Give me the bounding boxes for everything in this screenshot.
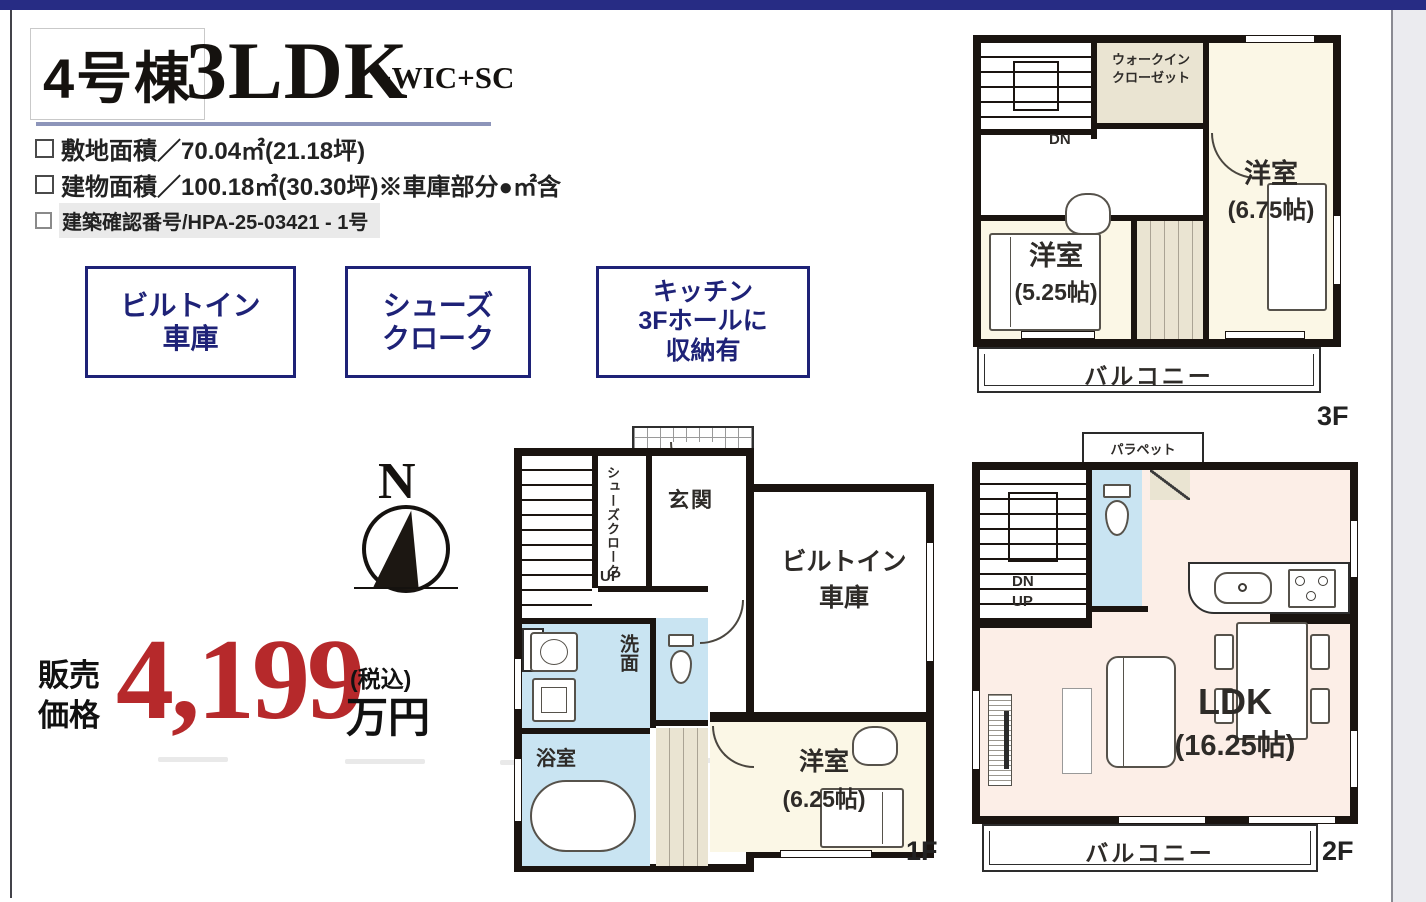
up-label: UP (600, 568, 621, 585)
floor-plan-3f: ウォークイン クローゼット DN 洋室 (6.75帖) 洋室 (5.25帖) バ… (973, 25, 1358, 435)
wic-line1: ウォークイン (1101, 51, 1201, 69)
spec-building-area: 建物面積／100.18㎡(30.30坪)※車庫部分●㎡含 (35, 167, 561, 202)
window (780, 850, 872, 858)
window (1350, 730, 1358, 788)
floor-tag-1f: 1F (906, 836, 938, 867)
shoe-closet-label: シューズクローク (604, 466, 619, 584)
feature-line: キッチン (653, 278, 753, 308)
washer-icon (532, 678, 576, 722)
ldk-label: LDK (16.25帖) (1120, 678, 1350, 766)
room-name: 洋室 (734, 744, 914, 782)
wall (980, 620, 1092, 628)
room-name: 洋室 (981, 237, 1131, 276)
feature-line: シューズ (383, 289, 494, 322)
floor-plan-1f: PS シューズクローク 玄関 UP ビルトイン 車庫 (512, 422, 948, 886)
room-size: (6.25帖) (734, 782, 914, 817)
plan-type-suffix: +WIC+SC (374, 60, 514, 96)
garage-label: ビルトイン 車庫 (764, 544, 924, 617)
wall (650, 618, 656, 728)
compass-base-line (354, 587, 458, 589)
garage-line1: ビルトイン (764, 544, 924, 580)
wic-line2: クローゼット (1101, 69, 1201, 87)
balcony-2f: バルコニー (982, 824, 1318, 872)
feature-line: ビルトイン (120, 289, 260, 322)
stairs-1f (522, 456, 592, 616)
floor-tag-3f: 3F (1317, 401, 1349, 432)
bedroom-525-label: 洋室 (5.25帖) (981, 237, 1131, 309)
up-label: UP (1012, 592, 1034, 612)
price-amount: 4,199 (116, 622, 362, 738)
garage-door-opening (926, 542, 934, 662)
stair-direction-label: DN UP (1012, 572, 1034, 611)
ghost-mark (158, 757, 228, 762)
closet-1f (656, 728, 708, 866)
window (1350, 520, 1358, 578)
window (1248, 816, 1336, 824)
feature-badge-kitchen-storage: キッチン 3Fホールに 収納有 (596, 266, 810, 378)
washer-drum (541, 687, 567, 713)
checkbox-icon (35, 139, 54, 158)
header-underline (36, 122, 491, 126)
checkbox-icon (35, 175, 54, 194)
feature-line: 収納有 (665, 337, 740, 367)
bedroom-675-label: 洋室 (6.75帖) (1209, 155, 1333, 229)
stool-icon (1065, 193, 1111, 235)
feature-badge-shoe-closet: シューズ クローク (345, 266, 531, 378)
tv-screen (1004, 711, 1009, 769)
niche-wedge (1150, 470, 1190, 500)
spec-land-area: 敷地面積／70.04㎡(21.18坪) (35, 131, 365, 166)
window (1021, 331, 1095, 339)
left-border-line (10, 10, 12, 898)
faucet-icon (1238, 583, 1247, 592)
spec-building-area-text: 建物面積／100.18㎡(30.30坪)※車庫部分●㎡含 (61, 167, 561, 202)
right-margin-strip (1393, 10, 1426, 902)
unit-number: 4号棟 (43, 34, 192, 115)
wall (1086, 470, 1092, 622)
room-size: (5.25帖) (981, 276, 1131, 309)
window (514, 758, 522, 822)
parapet-label: パラペット (1084, 439, 1202, 458)
window (1245, 35, 1315, 43)
wall (592, 456, 598, 588)
wall (1131, 221, 1137, 339)
price-unit: 万円 (346, 684, 430, 745)
walkin-closet-label: ウォークイン クローゼット (1101, 51, 1201, 86)
spec-confirmation-number-text: 建築確認番号/HPA-25-03421 - 1号 (59, 203, 380, 238)
vanity-sink-icon (530, 632, 578, 672)
compass-north-label: N (378, 452, 416, 511)
basin (540, 639, 568, 665)
ldk-name: LDK (1120, 678, 1350, 727)
price-caption-line2: 価格 (38, 696, 100, 736)
feature-line: 車庫 (162, 322, 218, 355)
wall (522, 618, 652, 624)
bathtub-icon (530, 780, 636, 852)
wall (656, 720, 708, 726)
stove-icon (1288, 569, 1336, 608)
window (1333, 215, 1341, 285)
bedroom-625-label: 洋室 (6.25帖) (734, 744, 914, 816)
feature-line: クローク (382, 322, 494, 355)
wall (710, 712, 926, 722)
stair-landing (1008, 492, 1058, 562)
price-caption-line1: 販売 (38, 656, 100, 696)
wall (598, 586, 708, 592)
stair-landing (1013, 61, 1059, 111)
entrance-label: 玄関 (668, 484, 714, 514)
wall (981, 129, 1097, 135)
balcony-label: バルコニー (979, 357, 1319, 391)
washroom-label: 洗面 (614, 634, 641, 720)
wall (646, 456, 652, 586)
room-size: (6.75帖) (1209, 194, 1333, 229)
unit-number-box: 4号棟 (30, 28, 205, 120)
floor-plan-2f: パラペット (970, 432, 1372, 884)
garage-line2: 車庫 (764, 580, 924, 616)
spec-land-area-text: 敷地面積／70.04㎡(21.18坪) (61, 131, 365, 166)
room-name: 洋室 (1209, 155, 1333, 194)
ldk-size: (16.25帖) (1120, 727, 1350, 766)
floor-tag-2f: 2F (1322, 836, 1354, 867)
balcony-3f: バルコニー (977, 347, 1321, 393)
window (1225, 331, 1305, 339)
tv-board-icon (988, 694, 1012, 786)
flyer-page: 4号棟 3LDK +WIC+SC 敷地面積／70.04㎡(21.18坪) 建物面… (0, 0, 1426, 902)
top-accent-bar (0, 0, 1426, 10)
chair-icon (1214, 634, 1234, 670)
checkbox-icon (35, 212, 52, 229)
burner (1295, 576, 1305, 586)
closet-3f (1137, 221, 1203, 339)
ghost-mark (345, 759, 425, 764)
burner (1306, 591, 1316, 601)
wall (1097, 123, 1209, 129)
bathroom-label: 浴室 (536, 742, 576, 771)
dn-label: DN (1049, 131, 1071, 148)
dn-label: DN (1012, 572, 1034, 592)
window (972, 690, 980, 770)
price-caption: 販売 価格 (38, 656, 100, 737)
toilet-tank (668, 634, 694, 647)
rug-icon (1062, 688, 1092, 774)
wall (522, 728, 650, 734)
balcony-label: バルコニー (984, 834, 1316, 868)
burner (1318, 576, 1328, 586)
wall (1092, 606, 1148, 612)
window (514, 658, 522, 710)
window (1118, 816, 1206, 824)
chair-icon (1310, 634, 1330, 670)
feature-badge-garage: ビルトイン 車庫 (85, 266, 296, 378)
feature-line: 3Fホールに (638, 307, 767, 337)
toilet-tank (1103, 484, 1131, 498)
spec-confirmation-number: 建築確認番号/HPA-25-03421 - 1号 (35, 203, 380, 238)
